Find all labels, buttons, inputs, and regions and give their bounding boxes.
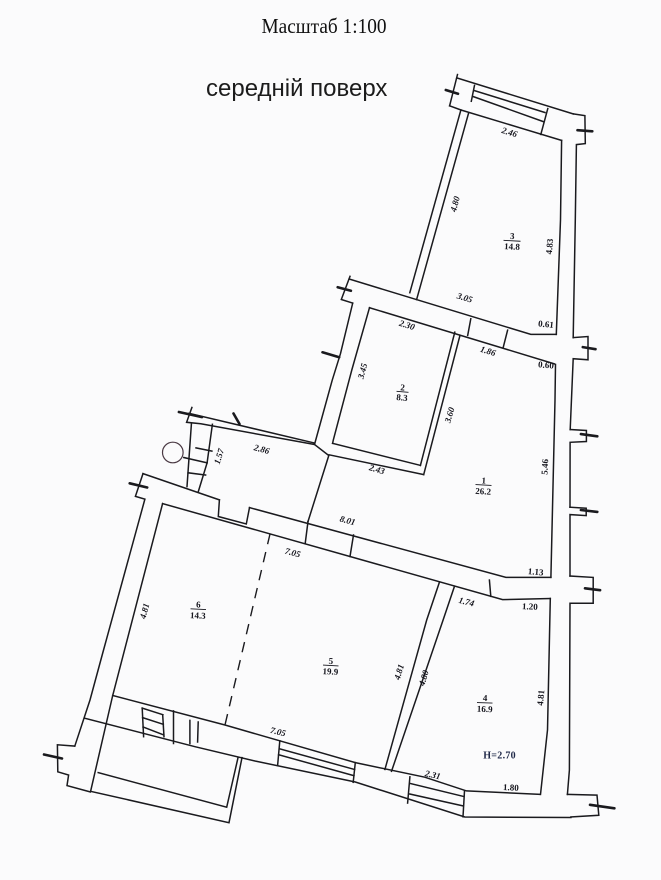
svg-text:0.60: 0.60 <box>538 359 555 370</box>
svg-text:5.46: 5.46 <box>539 458 550 475</box>
svg-text:6: 6 <box>196 599 202 609</box>
svg-text:2.43: 2.43 <box>367 462 386 476</box>
svg-text:8.01: 8.01 <box>339 514 357 528</box>
svg-text:26.2: 26.2 <box>475 486 492 497</box>
svg-text:0.61: 0.61 <box>538 318 555 330</box>
svg-text:4.81: 4.81 <box>535 689 546 706</box>
svg-text:5: 5 <box>328 656 334 666</box>
svg-text:1.13: 1.13 <box>527 566 544 577</box>
svg-text:3.60: 3.60 <box>442 406 457 425</box>
svg-text:7.05: 7.05 <box>284 546 302 560</box>
svg-text:16.9: 16.9 <box>477 704 494 715</box>
svg-text:7.05: 7.05 <box>269 725 287 739</box>
svg-text:1.80: 1.80 <box>503 782 520 793</box>
svg-text:4.80: 4.80 <box>448 195 462 214</box>
svg-text:3.45: 3.45 <box>355 362 369 381</box>
svg-text:3: 3 <box>510 231 516 241</box>
svg-text:2: 2 <box>400 382 406 392</box>
svg-text:1.57: 1.57 <box>212 447 226 465</box>
svg-text:1.20: 1.20 <box>522 601 539 612</box>
svg-text:4: 4 <box>483 693 488 703</box>
svg-text:8.3: 8.3 <box>396 392 409 403</box>
svg-text:2.86: 2.86 <box>252 442 271 456</box>
svg-text:2.30: 2.30 <box>397 318 416 333</box>
svg-text:4.80: 4.80 <box>416 669 431 688</box>
svg-text:4.81: 4.81 <box>392 663 406 682</box>
svg-text:3.05: 3.05 <box>455 290 474 305</box>
svg-text:2.31: 2.31 <box>423 768 442 782</box>
svg-text:4.83: 4.83 <box>544 238 555 255</box>
svg-text:14.8: 14.8 <box>504 241 521 252</box>
svg-text:1.74: 1.74 <box>458 595 476 609</box>
svg-text:14.3: 14.3 <box>190 610 207 621</box>
svg-text:4.81: 4.81 <box>137 602 151 621</box>
svg-text:1: 1 <box>481 475 487 485</box>
svg-text:19.9: 19.9 <box>322 666 339 677</box>
svg-text:H=2.70: H=2.70 <box>483 751 516 762</box>
